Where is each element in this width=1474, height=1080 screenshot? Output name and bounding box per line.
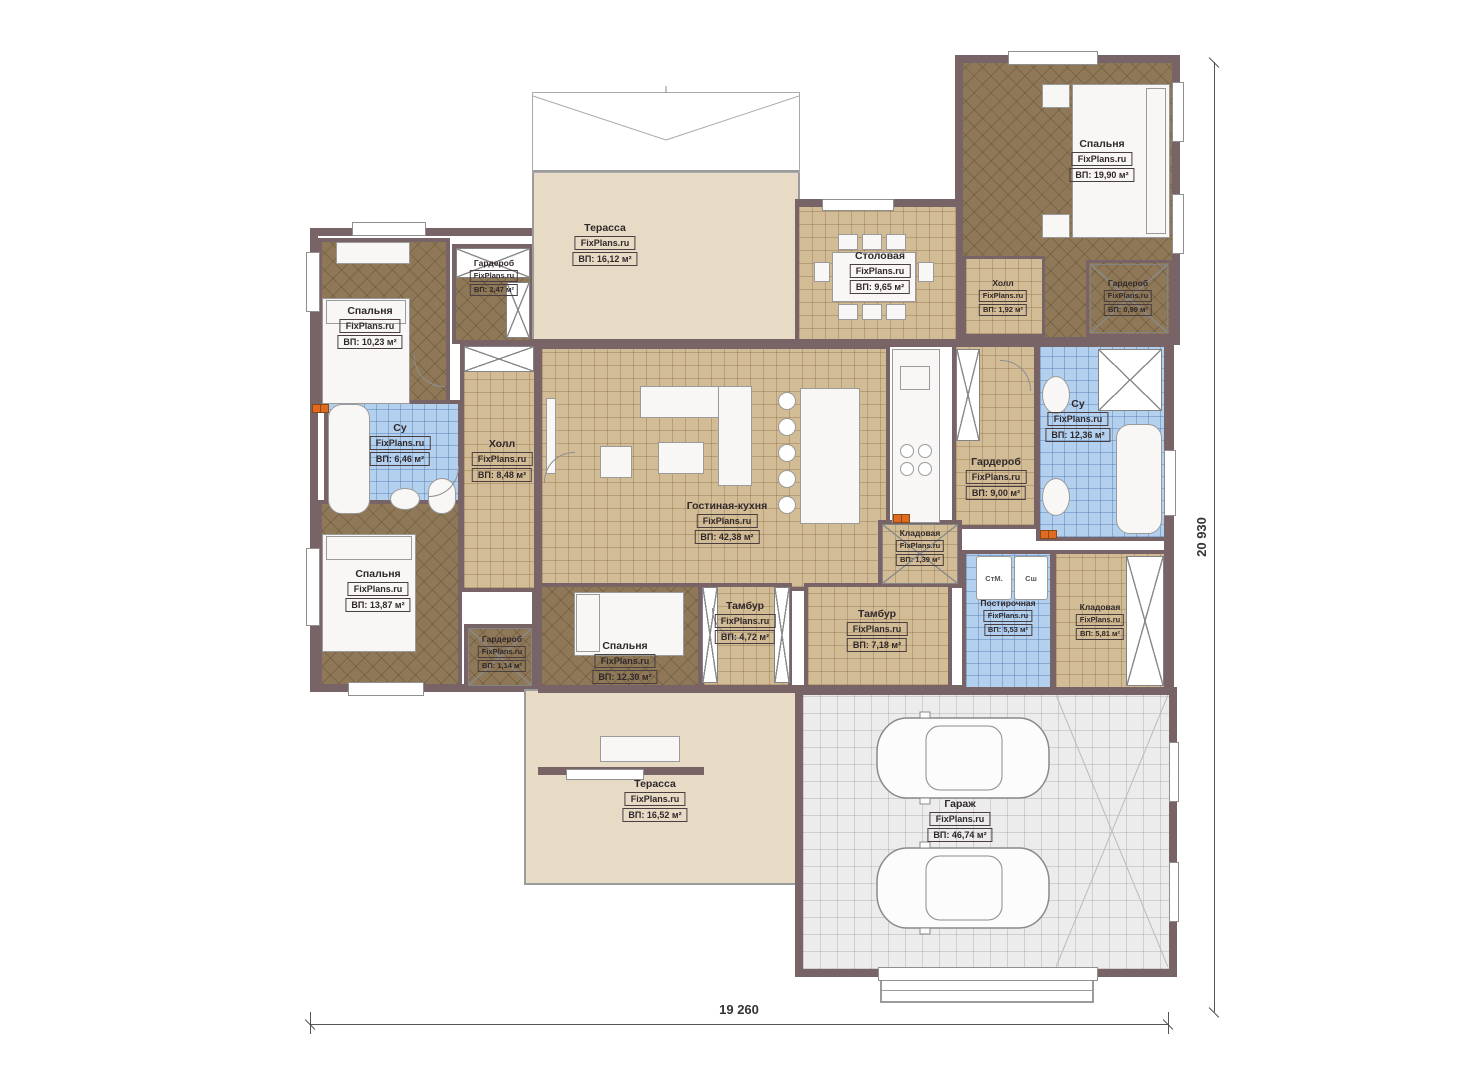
marker	[320, 404, 329, 413]
closet-shelving	[464, 346, 534, 372]
watermark: FixPlans.ru	[697, 514, 758, 528]
sink	[390, 488, 420, 510]
room-name: Холл	[489, 438, 515, 450]
armchair	[600, 446, 632, 478]
bar-stool	[778, 418, 796, 436]
room-label: Гардероб FixPlans.ru ВП: 2,47 м²	[470, 258, 518, 296]
dryer-label: Сш	[1025, 574, 1037, 583]
room-label: Спальня FixPlans.ru ВП: 10,23 м²	[337, 305, 402, 349]
room-name: Гардероб	[474, 258, 514, 268]
room-label: Спальня FixPlans.ru ВП: 19,90 м²	[1069, 138, 1134, 182]
bathtub	[1116, 424, 1162, 534]
room-name: Гардероб	[482, 634, 522, 644]
window	[1172, 194, 1184, 254]
nightstand	[1042, 84, 1070, 108]
room-area: ВП: 16,12 м²	[572, 252, 637, 266]
watermark: FixPlans.ru	[1104, 290, 1152, 302]
room-label: Спальня FixPlans.ru ВП: 12,30 м²	[592, 640, 657, 684]
room-area: ВП: 2,47 м²	[470, 284, 518, 296]
chair	[886, 304, 906, 320]
room-area: ВП: 5,81 м²	[1076, 628, 1124, 640]
room-area: ВП: 5,53 м²	[984, 624, 1032, 636]
watermark: FixPlans.ru	[595, 654, 656, 668]
room-name: Су	[1071, 398, 1084, 410]
watermark: FixPlans.ru	[470, 270, 518, 282]
room-area: ВП: 1,39 м²	[896, 554, 944, 566]
room-label: Холл FixPlans.ru ВП: 8,48 м²	[472, 438, 533, 482]
room-area: ВП: 4,72 м²	[715, 630, 775, 644]
watermark: FixPlans.ru	[930, 812, 991, 826]
room-name: Постирочная	[980, 598, 1035, 608]
room-label: Столовая FixPlans.ru ВП: 9,65 м²	[850, 250, 911, 294]
room-area: ВП: 1,92 м²	[979, 304, 1027, 316]
window	[306, 548, 320, 626]
garage-diagonals	[1056, 695, 1168, 967]
window	[306, 252, 320, 312]
room-area: ВП: 16,52 м²	[622, 808, 687, 822]
window	[822, 199, 894, 211]
room-name: Кладовая	[1080, 602, 1121, 612]
wall-terrace-living	[532, 339, 962, 347]
room-area: ВП: 9,00 м²	[966, 486, 1026, 500]
wardrobe-cabinet	[336, 242, 410, 264]
room-name: Спальня	[347, 305, 392, 317]
washing-machine: СтМ.	[976, 556, 1012, 600]
room-label: Кладовая FixPlans.ru ВП: 5,81 м²	[1076, 602, 1124, 640]
wall-central-bottom	[538, 685, 962, 693]
room-label: Спальня FixPlans.ru ВП: 13,87 м²	[345, 568, 410, 612]
room-name: Гостиная-кухня	[687, 500, 767, 512]
room-name: Гараж	[944, 798, 975, 810]
bar-stool	[778, 470, 796, 488]
room-area: ВП: 12,36 м²	[1045, 428, 1110, 442]
room-area: ВП: 7,18 м²	[847, 638, 907, 652]
window	[1169, 862, 1179, 922]
window	[1008, 51, 1098, 65]
room-label: Кладовая FixPlans.ru ВП: 1,39 м²	[896, 528, 944, 566]
sofa	[718, 386, 752, 486]
pillow	[1146, 88, 1166, 234]
watermark: FixPlans.ru	[1048, 412, 1109, 426]
room-name: Спальня	[355, 568, 400, 580]
marker	[901, 514, 910, 523]
room-label: Гардероб FixPlans.ru ВП: 1,14 м²	[478, 634, 526, 672]
roof-outline	[532, 86, 800, 174]
nightstand	[1042, 214, 1070, 238]
dimension-line-bottom	[310, 1024, 1168, 1025]
chair	[862, 234, 882, 250]
watermark: FixPlans.ru	[472, 452, 533, 466]
room-area: ВП: 12,30 м²	[592, 670, 657, 684]
dryer-machine: Сш	[1014, 556, 1048, 600]
cooktop-burner	[918, 444, 932, 458]
pillow	[326, 536, 412, 560]
chair	[838, 304, 858, 320]
room-name: Гардероб	[1108, 278, 1148, 288]
room-area: ВП: 46,74 м²	[927, 828, 992, 842]
room-name: Су	[393, 422, 406, 434]
room-label: Гардероб FixPlans.ru ВП: 9,00 м²	[966, 456, 1027, 500]
room-label: Терасса FixPlans.ru ВП: 16,12 м²	[572, 222, 637, 266]
room-name: Гардероб	[971, 456, 1021, 468]
window	[348, 682, 424, 696]
dimension-height-label: 20 930	[1190, 517, 1213, 557]
watermark: FixPlans.ru	[1076, 614, 1124, 626]
watermark: FixPlans.ru	[340, 319, 401, 333]
dimension-line-right	[1214, 62, 1215, 1012]
watermark: FixPlans.ru	[715, 614, 776, 628]
room-label: Гостиная-кухня FixPlans.ru ВП: 42,38 м²	[687, 500, 767, 544]
watermark: FixPlans.ru	[979, 290, 1027, 302]
watermark: FixPlans.ru	[847, 622, 908, 636]
room-name: Кладовая	[900, 528, 941, 538]
watermark: FixPlans.ru	[478, 646, 526, 658]
room-name: Терасса	[634, 778, 676, 790]
bar-stool	[778, 392, 796, 410]
car	[874, 710, 1052, 806]
room-area: ВП: 0,99 м²	[1104, 304, 1152, 316]
watermark: FixPlans.ru	[370, 436, 431, 450]
cooktop-burner	[900, 444, 914, 458]
window	[1172, 82, 1184, 142]
sink	[1042, 478, 1070, 516]
watermark: FixPlans.ru	[575, 236, 636, 250]
room-label: Су FixPlans.ru ВП: 6,46 м²	[370, 422, 431, 466]
bar-stool	[778, 496, 796, 514]
watermark: FixPlans.ru	[984, 610, 1032, 622]
chair	[814, 262, 830, 282]
car	[874, 840, 1052, 936]
bar-stool	[778, 444, 796, 462]
window	[1169, 742, 1179, 802]
room-area: ВП: 9,65 м²	[850, 280, 910, 294]
window	[1164, 450, 1176, 516]
cooktop-burner	[918, 462, 932, 476]
room-label: Холл FixPlans.ru ВП: 1,92 м²	[979, 278, 1027, 316]
watermark: FixPlans.ru	[625, 792, 686, 806]
room-name: Тамбур	[726, 600, 764, 612]
closet-shelving	[1126, 556, 1164, 686]
coffee-table	[658, 442, 704, 474]
room-label: Терасса FixPlans.ru ВП: 16,52 м²	[622, 778, 687, 822]
cooktop-burner	[900, 462, 914, 476]
room-label: Гардероб FixPlans.ru ВП: 0,99 м²	[1104, 278, 1152, 316]
closet-shelving	[774, 587, 790, 683]
room-name: Столовая	[855, 250, 905, 262]
room-name: Холл	[992, 278, 1013, 288]
chair	[886, 234, 906, 250]
desk	[600, 736, 680, 762]
watermark: FixPlans.ru	[348, 582, 409, 596]
room-name: Спальня	[602, 640, 647, 652]
chair	[862, 304, 882, 320]
washer-label: СтМ.	[985, 574, 1002, 583]
watermark: FixPlans.ru	[1072, 152, 1133, 166]
room-area: ВП: 8,48 м²	[472, 468, 532, 482]
chair	[918, 262, 934, 282]
room-area: ВП: 13,87 м²	[345, 598, 410, 612]
kitchen-island	[800, 388, 860, 524]
room-label: Тамбур FixPlans.ru ВП: 7,18 м²	[847, 608, 908, 652]
room-label: Гараж FixPlans.ru ВП: 46,74 м²	[927, 798, 992, 842]
watermark: FixPlans.ru	[966, 470, 1027, 484]
room-label: Тамбур FixPlans.ru ВП: 4,72 м²	[715, 600, 776, 644]
chair	[838, 234, 858, 250]
room-name: Тамбур	[858, 608, 896, 620]
room-label: Су FixPlans.ru ВП: 12,36 м²	[1045, 398, 1110, 442]
room-area: ВП: 10,23 м²	[337, 335, 402, 349]
watermark: FixPlans.ru	[896, 540, 944, 552]
room-area: ВП: 1,14 м²	[478, 660, 526, 672]
room-name: Спальня	[1079, 138, 1124, 150]
watermark: FixPlans.ru	[850, 264, 911, 278]
marker	[1048, 530, 1057, 539]
room-area: ВП: 19,90 м²	[1069, 168, 1134, 182]
closet-shelving	[956, 349, 980, 441]
room-area: ВП: 42,38 м²	[694, 530, 759, 544]
room-name: Терасса	[584, 222, 626, 234]
room-label: Постирочная FixPlans.ru ВП: 5,53 м²	[980, 598, 1035, 636]
garage-door-opening	[878, 967, 1098, 981]
bathtub	[328, 404, 370, 514]
room-area: ВП: 6,46 м²	[370, 452, 430, 466]
window	[352, 222, 426, 236]
floor-plan: СтМ. Сш Спальня FixPlans.ru ВП: 10,23 м²…	[0, 0, 1474, 1080]
kitchen-sink	[900, 366, 930, 390]
dimension-width-label: 19 260	[715, 1002, 763, 1017]
